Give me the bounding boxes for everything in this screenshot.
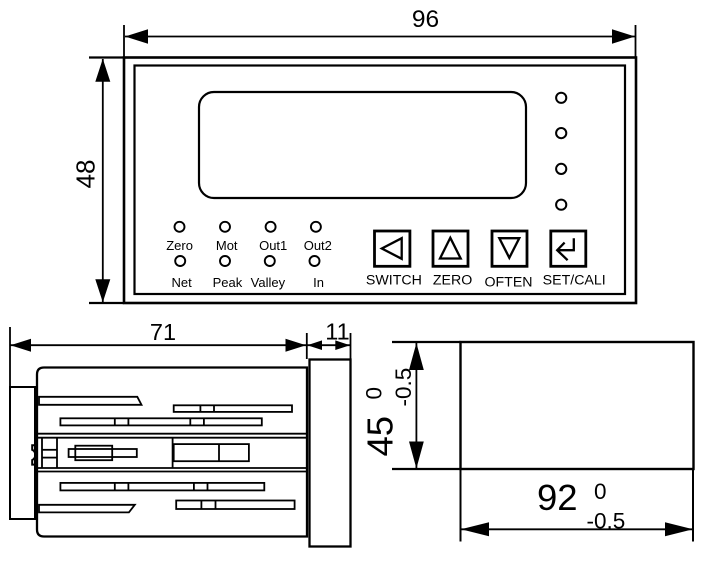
svg-text:Peak: Peak: [213, 275, 243, 290]
svg-text:Mot: Mot: [216, 238, 238, 253]
svg-text:92: 92: [537, 477, 578, 518]
svg-text:Out1: Out1: [259, 238, 287, 253]
svg-text:OFTEN: OFTEN: [484, 275, 532, 291]
svg-text:-0.5: -0.5: [391, 368, 416, 407]
svg-text:71: 71: [150, 319, 176, 345]
svg-text:-0.5: -0.5: [587, 509, 626, 534]
svg-text:0: 0: [362, 387, 387, 400]
svg-text:SET/CALI: SET/CALI: [543, 272, 606, 288]
svg-text:0: 0: [594, 479, 607, 504]
svg-text:11: 11: [325, 319, 349, 345]
svg-text:ZERO: ZERO: [433, 272, 472, 288]
svg-text:Zero: Zero: [166, 238, 193, 253]
svg-text:SWITCH: SWITCH: [366, 272, 422, 288]
svg-text:Valley: Valley: [251, 275, 286, 290]
svg-text:48: 48: [71, 160, 101, 189]
svg-text:96: 96: [412, 6, 439, 33]
svg-text:Net: Net: [171, 275, 192, 290]
svg-text:Out2: Out2: [304, 238, 332, 253]
svg-text:45: 45: [360, 416, 401, 457]
svg-text:In: In: [313, 275, 324, 290]
